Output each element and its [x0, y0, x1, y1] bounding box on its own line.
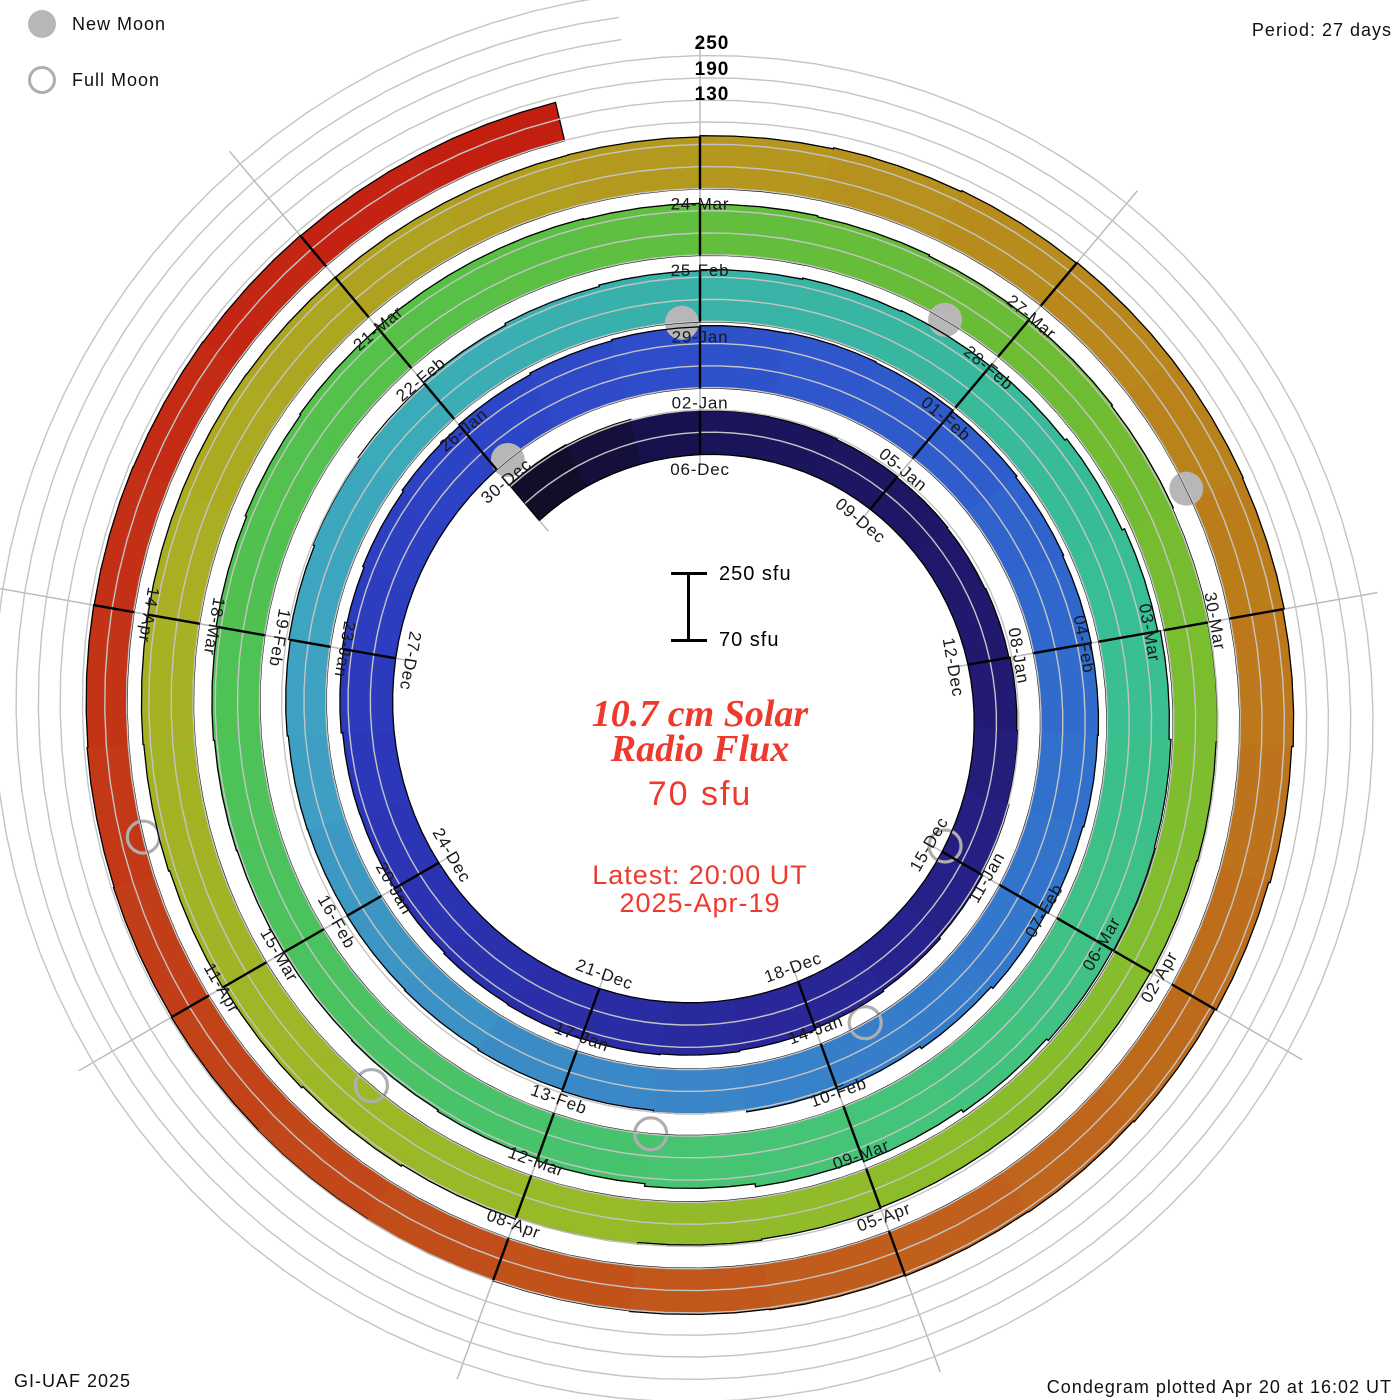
latest-date-label: 2025-Apr-19 [420, 889, 980, 918]
chart-title-line1: 10.7 cm Solar [420, 698, 980, 731]
scalebar-max-label: 250 sfu [719, 563, 792, 586]
axis-label-190: 190 [677, 59, 747, 81]
latest-time-label: Latest: 20:00 UT [420, 861, 980, 890]
scalebar-min-label: 70 sfu [719, 629, 779, 652]
axis-label-250: 250 [677, 33, 747, 55]
new-moon-label: New Moon [72, 14, 166, 35]
credit-label: GI-UAF 2025 [14, 1371, 131, 1392]
svg-text:24-Mar: 24-Mar [671, 194, 730, 213]
legend-full-moon: Full Moon [28, 66, 160, 94]
latest-flux-value: 70 sfu [420, 775, 980, 814]
full-moon-label: Full Moon [72, 70, 160, 91]
svg-text:29-Jan: 29-Jan [672, 327, 729, 346]
legend-new-moon: New Moon [28, 10, 166, 38]
axis-label-130: 130 [677, 84, 747, 106]
svg-text:02-Jan: 02-Jan [672, 394, 729, 413]
svg-text:27-Dec: 27-Dec [396, 630, 425, 692]
scalebar-line [687, 572, 690, 642]
scalebar-bottom-cap [671, 639, 707, 642]
plotted-timestamp: Condegram plotted Apr 20 at 16:02 UT [1047, 1377, 1392, 1398]
full-moon-icon [28, 66, 56, 94]
condegram-page: 06-Dec09-Dec12-Dec15-Dec18-Dec21-Dec24-D… [0, 0, 1400, 1400]
svg-text:06-Dec: 06-Dec [670, 460, 730, 479]
svg-text:25-Feb: 25-Feb [671, 261, 730, 280]
period-label: Period: 27 days [1252, 20, 1392, 41]
new-moon-icon [28, 10, 56, 38]
chart-title-line2: Radio Flux [420, 733, 980, 766]
